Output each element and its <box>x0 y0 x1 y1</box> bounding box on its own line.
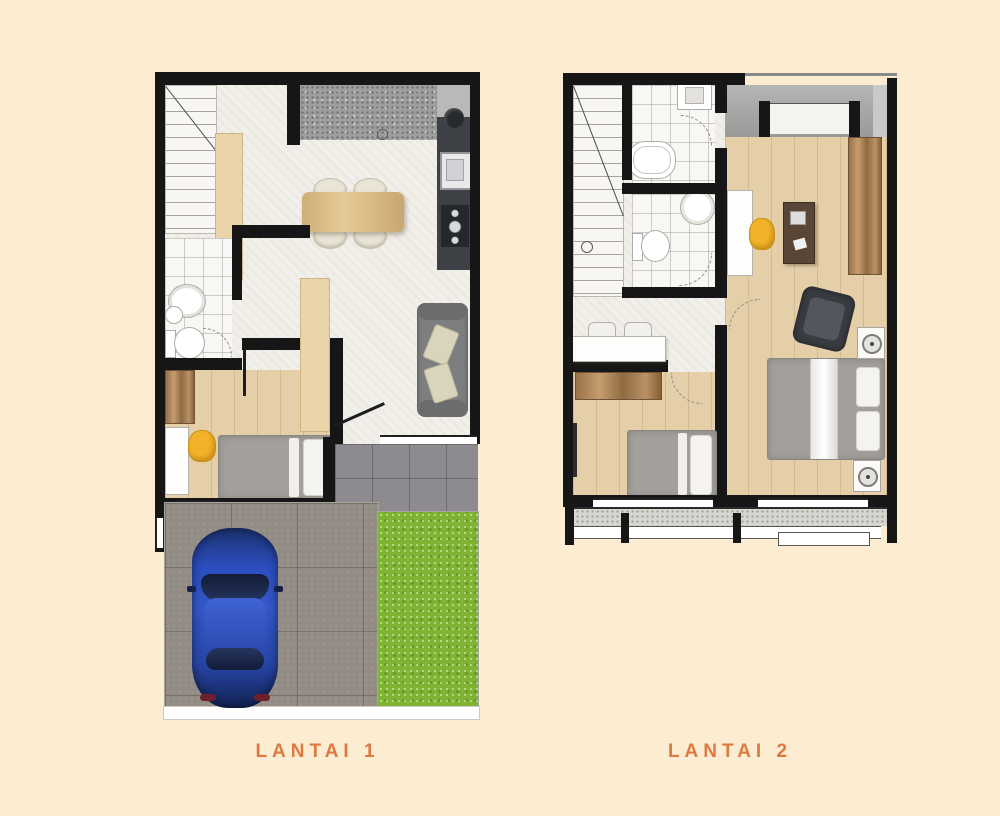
wall <box>155 72 165 552</box>
wall <box>563 73 573 503</box>
wall <box>165 358 242 370</box>
bathtub <box>628 141 676 179</box>
bathroom-sink <box>677 82 712 110</box>
wall <box>622 183 725 194</box>
balcony-railing-step <box>778 532 870 546</box>
stair-symbol <box>581 241 593 253</box>
blanket-fold <box>678 433 687 495</box>
label-lantai-1: LANTAI 1 <box>155 741 480 763</box>
stair-break-line <box>165 86 216 151</box>
sink-basin <box>685 87 704 104</box>
single-bed <box>218 435 332 500</box>
nightstand <box>857 327 885 359</box>
round-basin <box>680 190 715 225</box>
wall <box>759 101 770 137</box>
wall <box>715 194 727 298</box>
car-mirror <box>274 586 283 592</box>
wall <box>887 78 897 543</box>
sidewalk <box>163 706 480 720</box>
roof-line <box>745 73 897 76</box>
porch-lamp-icon <box>377 129 388 140</box>
bedroom-door-leaf <box>243 350 246 396</box>
desk-chair-yellow <box>749 218 775 250</box>
kitchen-sink <box>440 152 472 190</box>
double-bed <box>767 358 885 460</box>
entry-porch-paving <box>300 85 437 140</box>
stove <box>441 205 469 247</box>
bedroom-desk <box>165 427 189 495</box>
nightstand <box>853 460 881 492</box>
wall <box>287 72 300 145</box>
roof-edge <box>873 85 887 137</box>
bed-runner <box>810 359 838 459</box>
study-desk <box>572 336 666 362</box>
window-opening <box>768 103 851 134</box>
wall <box>232 225 310 238</box>
wall <box>470 72 480 444</box>
sofa-cushion <box>422 323 460 366</box>
terrace <box>335 444 478 512</box>
basin-pedestal <box>165 306 183 324</box>
lamp-icon <box>858 467 878 487</box>
desk-laptop <box>790 211 806 225</box>
balcony-post <box>733 513 741 543</box>
pillow <box>690 435 712 495</box>
balcony-post <box>621 513 629 543</box>
armchair-seat <box>802 296 846 342</box>
sofa-armrest <box>419 400 466 417</box>
toilet <box>174 327 205 359</box>
balcony-floor <box>565 507 887 526</box>
wall <box>715 148 727 194</box>
floorplan-lantai-1 <box>155 72 480 720</box>
stairs <box>165 85 217 234</box>
window <box>155 518 165 548</box>
floorplan-image: LANTAI 1 LANTAI 2 <box>0 0 1000 816</box>
wall <box>715 85 727 113</box>
desk-papers <box>793 238 807 251</box>
wardrobe <box>848 137 882 275</box>
headboard-shelf <box>575 372 662 400</box>
dining-table <box>302 192 404 232</box>
sink-basin <box>446 159 464 181</box>
wall <box>622 287 725 298</box>
pillow <box>856 411 880 451</box>
car-roof <box>204 598 266 648</box>
stair-break-line <box>573 86 624 216</box>
car-taillight <box>254 694 270 701</box>
pillow <box>856 367 880 407</box>
wardrobe <box>165 370 195 424</box>
bathtub-inner <box>633 146 671 174</box>
kitchen-counter <box>437 117 470 270</box>
car-mirror <box>187 586 196 592</box>
wall <box>155 72 480 85</box>
blanket-fold <box>289 438 299 497</box>
sofa-armrest <box>419 303 466 320</box>
balcony-post <box>565 507 574 545</box>
stairs <box>573 85 624 297</box>
car <box>192 528 278 708</box>
tall-cabinet-divider <box>300 278 330 432</box>
wall <box>563 73 745 85</box>
wall <box>323 437 335 505</box>
car-rear-window <box>206 648 264 670</box>
toilet <box>641 230 670 262</box>
lamp-icon <box>862 334 882 354</box>
single-bed <box>627 430 717 498</box>
sofa-cushion <box>423 362 459 404</box>
wall <box>849 101 860 137</box>
label-lantai-2: LANTAI 2 <box>563 741 897 763</box>
wall <box>232 225 242 300</box>
wall <box>622 85 632 180</box>
car-taillight <box>200 694 216 701</box>
lawn <box>378 512 478 706</box>
floorplan-lantai-2 <box>563 73 897 555</box>
work-desk <box>783 202 815 264</box>
wall <box>242 338 300 350</box>
desk-chair-yellow <box>188 430 216 462</box>
kitchen-vase-icon <box>444 108 464 128</box>
sofa <box>417 303 468 417</box>
